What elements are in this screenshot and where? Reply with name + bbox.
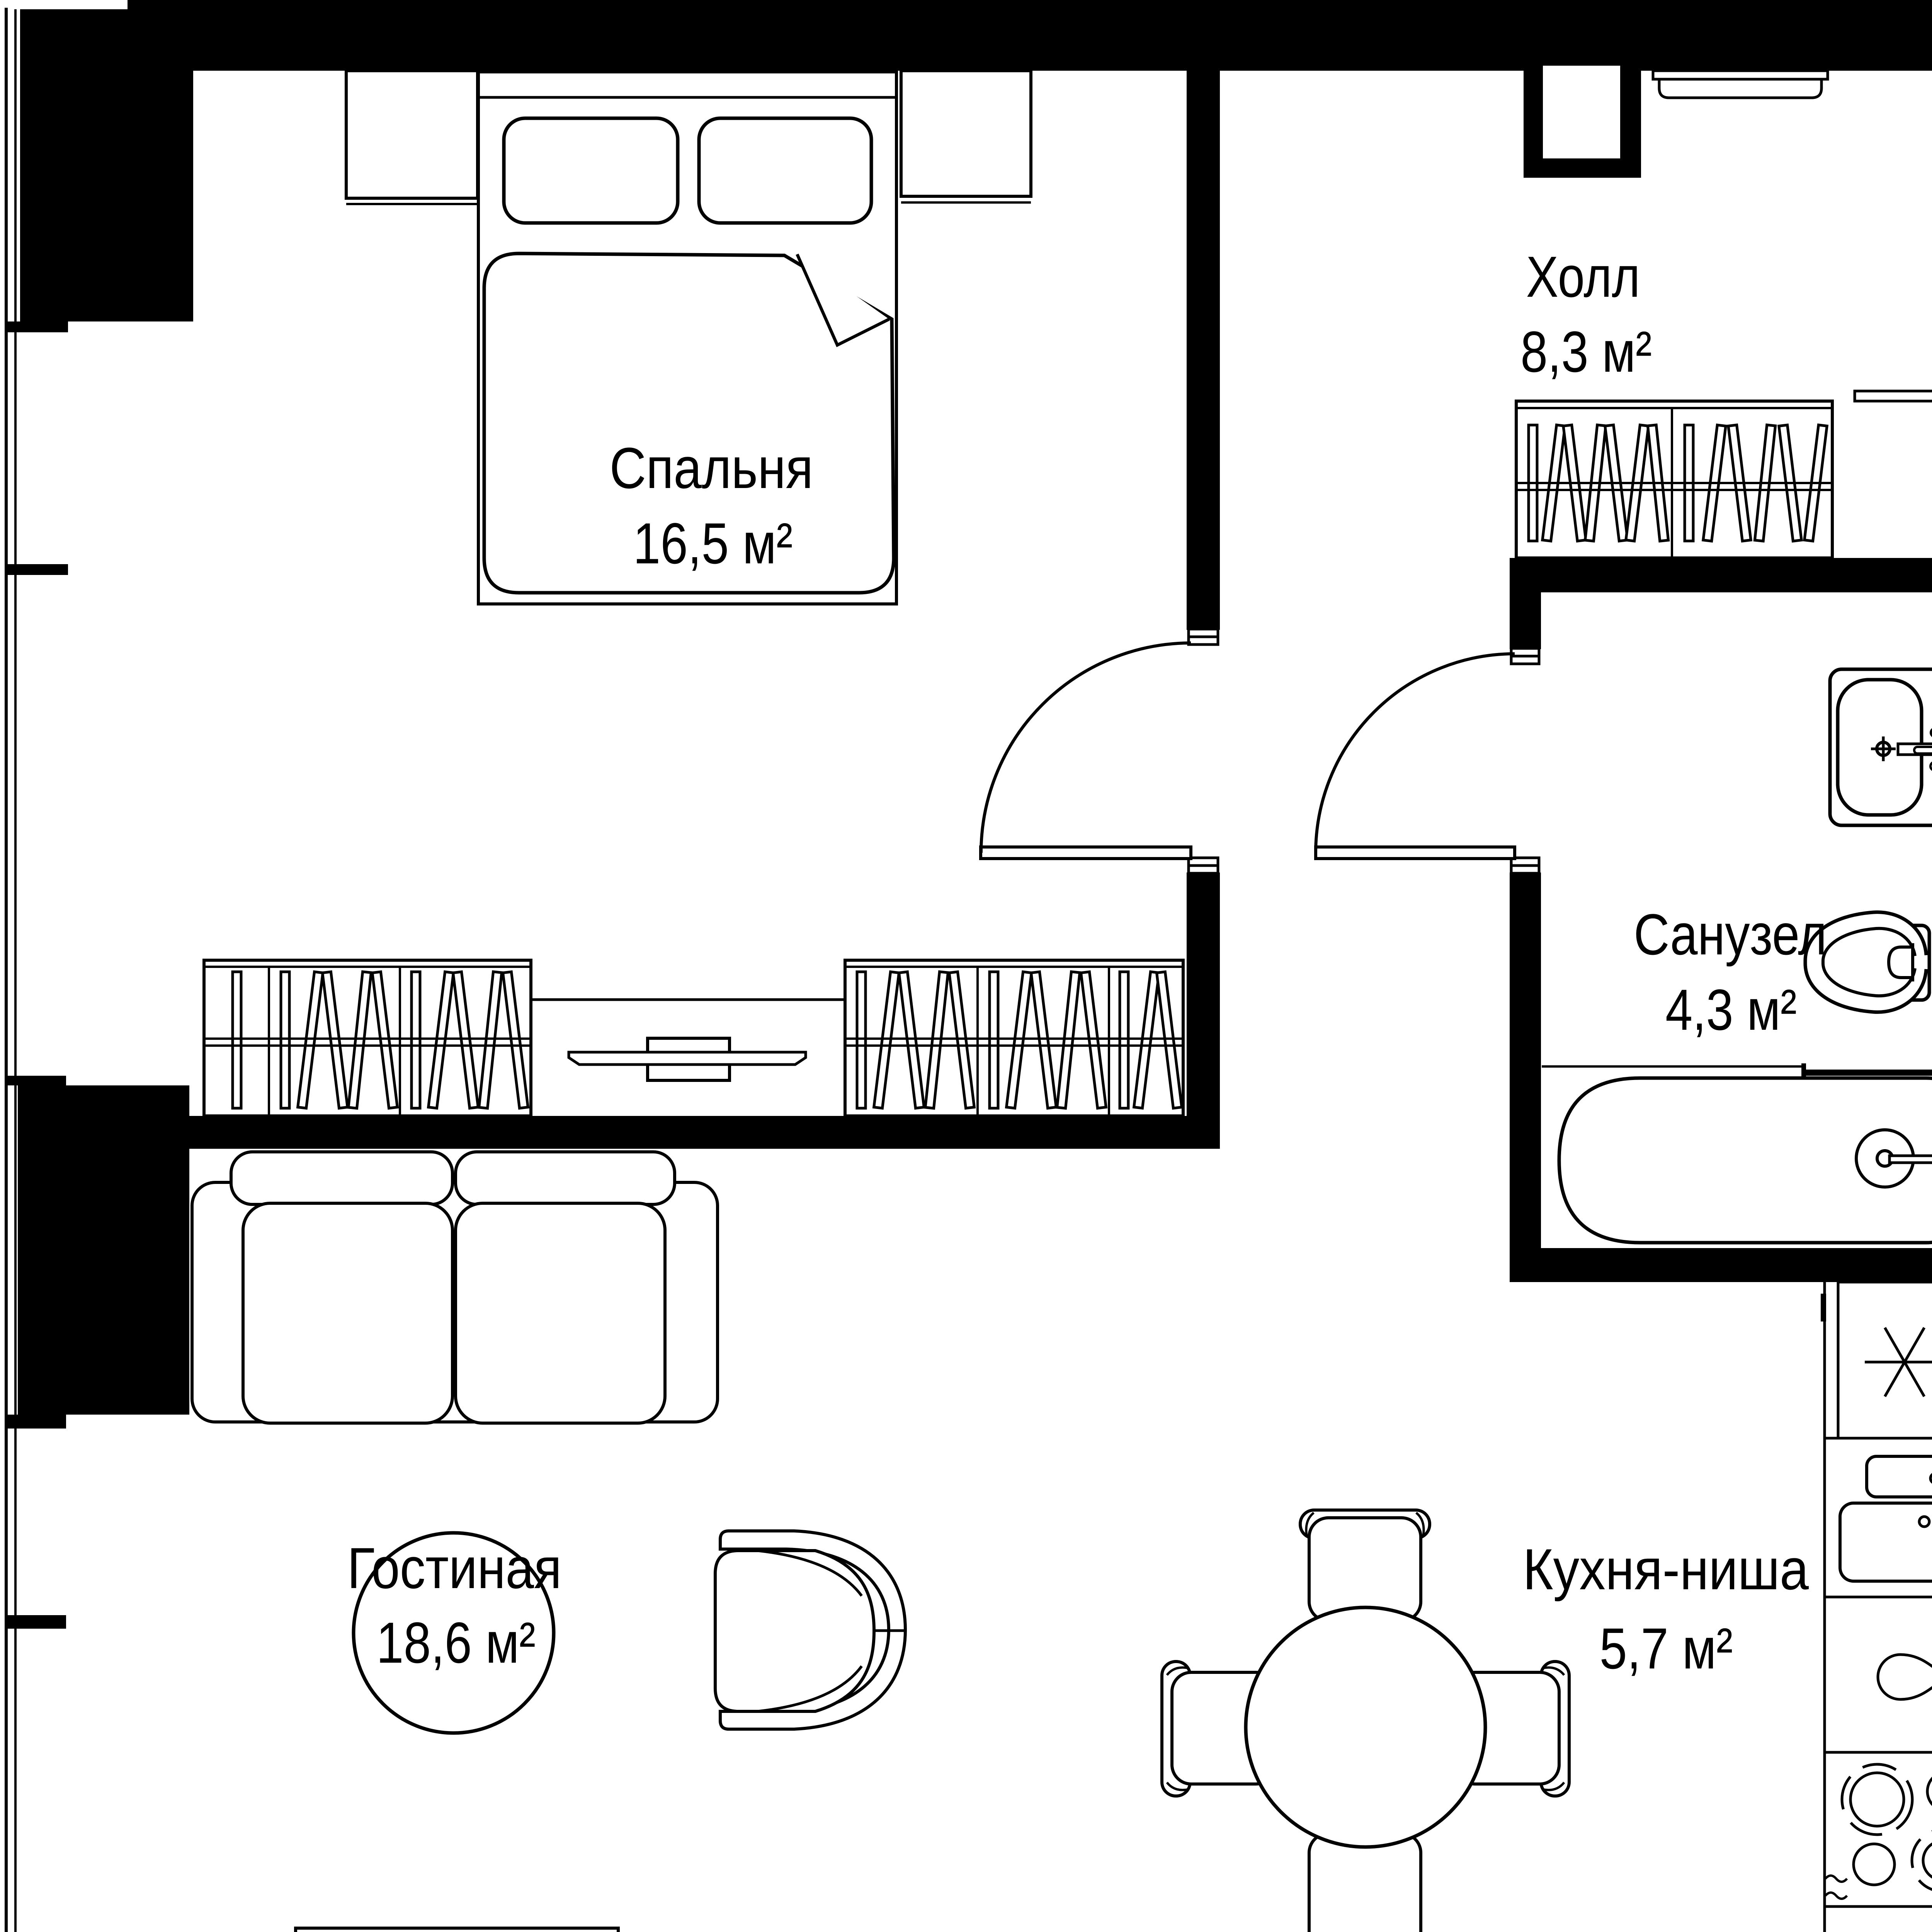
svg-text:Спальня: Спальня <box>610 435 813 500</box>
svg-text:16,5 м²: 16,5 м² <box>633 511 793 576</box>
svg-text:Санузел: Санузел <box>1634 902 1827 967</box>
svg-text:8,3 м²: 8,3 м² <box>1520 319 1652 384</box>
svg-text:18,6 м²: 18,6 м² <box>376 1610 536 1675</box>
svg-text:4,3 м²: 4,3 м² <box>1665 977 1797 1042</box>
svg-text:Гостиная: Гостиная <box>347 1536 562 1600</box>
svg-text:Кухня-ниша: Кухня-ниша <box>1523 1537 1809 1602</box>
svg-text:Холл: Холл <box>1526 244 1640 309</box>
svg-text:5,7 м²: 5,7 м² <box>1600 1616 1733 1681</box>
